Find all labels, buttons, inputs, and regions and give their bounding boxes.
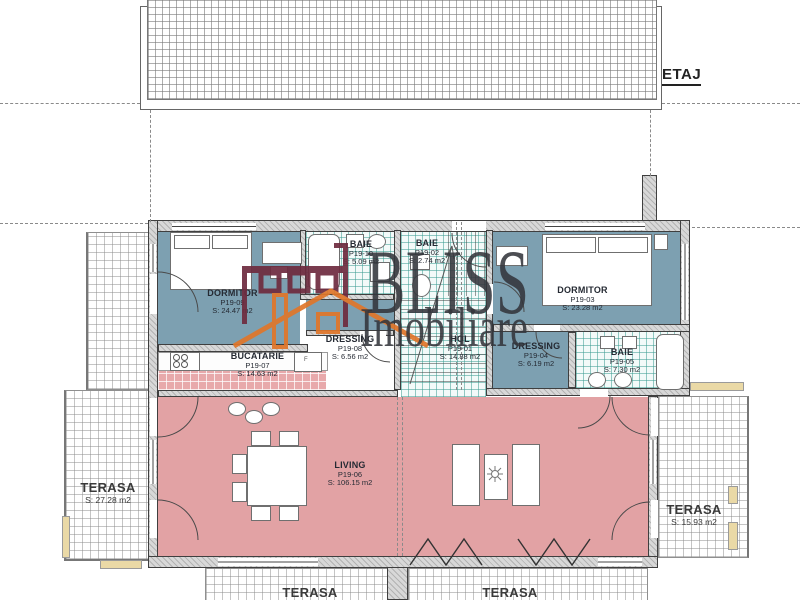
floor-title: ETAJ <box>662 66 701 86</box>
room-label-living-p19-06: LIVING P19-06 S: 106.15 m2 <box>300 460 400 488</box>
terrace-label-left: TERASA S: 27.28 m2 <box>70 481 146 506</box>
door-gap <box>150 500 157 538</box>
projection-line <box>150 110 151 222</box>
window <box>598 558 642 566</box>
wall-baie10-left <box>300 230 306 300</box>
roof-hatch <box>147 0 657 100</box>
room-area: S: 7.30 m2 <box>588 366 656 375</box>
coffee-table <box>484 454 508 500</box>
pendant-lamp <box>228 402 246 416</box>
balcony-upper-left <box>86 232 151 390</box>
chair <box>279 431 299 446</box>
pendant-lamp <box>262 402 280 416</box>
room-label-baie-p19-05: BAIE P19-05 S: 7.30 m2 <box>588 347 656 375</box>
projection-line <box>692 227 800 228</box>
parapet-rail <box>728 486 738 504</box>
desk <box>262 242 302 264</box>
door-gap <box>150 398 157 436</box>
window <box>682 244 688 320</box>
chair <box>251 506 271 521</box>
watermark-brand-subtitle: Imobiliare <box>360 300 528 356</box>
stove-burner <box>181 354 188 361</box>
room-fill-living-p19-06 <box>158 397 648 556</box>
bed-pillow <box>174 235 210 249</box>
door-gap <box>150 274 157 314</box>
room-label-bucatarie-p19-07: BUCATARIE P19-07 S: 14.63 m2 <box>205 351 310 379</box>
projection-line <box>0 103 140 104</box>
room-area: S: 24.47 m2 <box>175 307 290 316</box>
stove-burner <box>173 354 180 361</box>
chair <box>270 266 288 279</box>
bed-pillow <box>212 235 248 249</box>
terrace-name: TERASA <box>658 503 730 518</box>
door-gap <box>651 398 658 436</box>
room-area: S: 14.63 m2 <box>205 370 310 379</box>
window <box>150 244 156 272</box>
bathtub <box>656 334 684 390</box>
terrace-area: S: 27.28 m2 <box>70 496 146 506</box>
door-gap <box>452 221 486 231</box>
chair <box>232 482 247 502</box>
door-gap <box>651 500 658 538</box>
unit-separation-line <box>402 397 403 556</box>
window <box>218 558 318 566</box>
parapet-rail <box>100 560 142 569</box>
room-label-dormitor-p19-09: DORMITOR P19-09 S: 24.47 m2 <box>175 288 290 316</box>
parapet-rail <box>690 382 744 391</box>
terrace-name: TERASA <box>260 586 360 600</box>
terrace-label-bottom-right: TERASA <box>460 586 560 600</box>
room-area: S: 106.15 m2 <box>300 479 400 488</box>
nightstand <box>654 234 668 250</box>
armchair <box>452 444 480 506</box>
armchair <box>512 444 540 506</box>
stove-burner <box>173 361 180 368</box>
chair <box>279 506 299 521</box>
dining-table <box>247 446 307 506</box>
chimney <box>642 175 657 222</box>
terrace-area: S: 15.93 m2 <box>658 518 730 528</box>
room-area: S: 23.28 m2 <box>525 304 640 313</box>
door-gap <box>534 325 560 331</box>
floor-plan-canvas: ETAJ <box>0 0 800 600</box>
window <box>150 440 156 484</box>
terrace-name: TERASA <box>70 481 146 496</box>
window <box>545 223 645 230</box>
bed-pillow <box>598 237 648 253</box>
pendant-lamp <box>245 410 263 424</box>
terrace-left <box>64 390 151 561</box>
terrace-name: TERASA <box>460 586 560 600</box>
room-area: S: 6.19 m2 <box>498 360 574 369</box>
wall-kitchen-living <box>158 390 398 397</box>
parapet-rail <box>62 516 70 558</box>
projection-line <box>0 223 148 224</box>
window <box>172 223 256 230</box>
chair <box>232 454 247 474</box>
terrace-label-right: TERASA S: 15.93 m2 <box>658 503 730 528</box>
projection-line <box>650 110 651 176</box>
chair <box>251 431 271 446</box>
door-gap <box>580 389 608 396</box>
bed-pillow <box>546 237 596 253</box>
stove-burner <box>181 361 188 368</box>
window <box>650 440 656 484</box>
terrace-label-bottom-left: TERASA <box>260 586 360 600</box>
projection-line <box>662 103 800 104</box>
room-label-dormitor-p19-03: DORMITOR P19-03 S: 23.28 m2 <box>525 285 640 313</box>
